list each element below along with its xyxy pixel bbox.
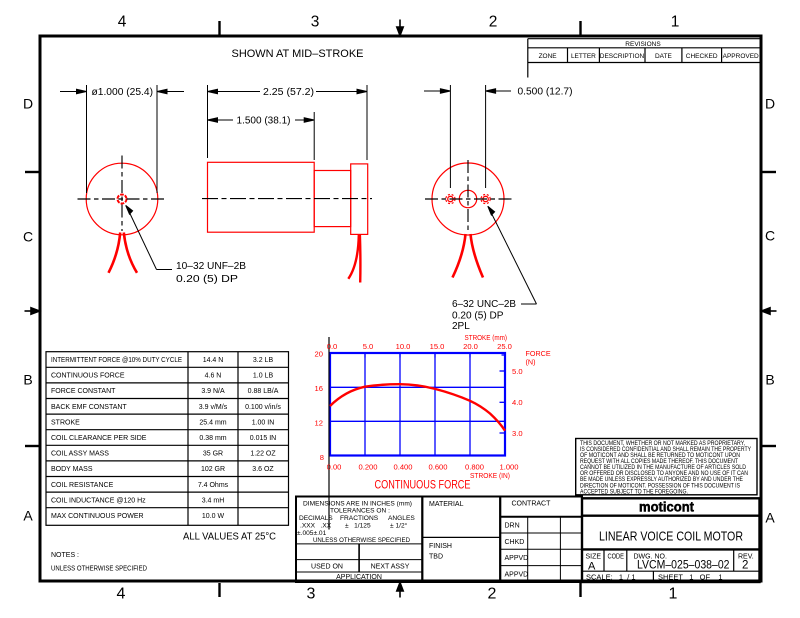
svg-text:± 1/2°: ± 1/2° xyxy=(390,522,408,530)
svg-text:25.0: 25.0 xyxy=(497,342,512,351)
svg-text:0.0: 0.0 xyxy=(327,342,338,351)
svg-text:CODE: CODE xyxy=(608,554,625,561)
svg-text:CHKD: CHKD xyxy=(505,539,525,546)
svg-text:20: 20 xyxy=(315,350,323,359)
svg-text:MATERIAL: MATERIAL xyxy=(429,501,464,508)
svg-text:0.88 LB/A: 0.88 LB/A xyxy=(248,388,279,395)
svg-text:10.0 W: 10.0 W xyxy=(202,513,225,520)
svg-text:0.400: 0.400 xyxy=(393,463,412,472)
svg-text:APPROVED: APPROVED xyxy=(723,53,759,60)
svg-text:3.6 OZ: 3.6 OZ xyxy=(252,466,274,473)
svg-text:BODY MASS: BODY MASS xyxy=(51,466,93,473)
svg-text:A: A xyxy=(588,561,596,573)
svg-text:2: 2 xyxy=(742,560,748,572)
svg-text:1.22 OZ: 1.22 OZ xyxy=(250,451,276,458)
svg-text:moticont: moticont xyxy=(639,500,694,515)
svg-text:2.25 (57.2): 2.25 (57.2) xyxy=(263,87,314,98)
svg-text:SHEET 1 OF 1: SHEET 1 OF 1 xyxy=(658,573,723,582)
svg-text:SIZE: SIZE xyxy=(586,554,602,561)
svg-text:CONTRACT: CONTRACT xyxy=(512,501,552,508)
svg-text:0.015 IN: 0.015 IN xyxy=(250,435,276,442)
svg-text:STROKE (mm): STROKE (mm) xyxy=(465,333,508,342)
svg-text:1: 1 xyxy=(669,586,678,603)
svg-text:D: D xyxy=(765,96,775,112)
svg-text:BACK EMF CONSTANT: BACK EMF CONSTANT xyxy=(51,404,127,411)
svg-text:0.20 (5) DP: 0.20 (5) DP xyxy=(176,274,238,285)
svg-text:C: C xyxy=(23,229,33,245)
svg-text:1.00 IN: 1.00 IN xyxy=(252,419,275,426)
svg-text:3.2 LB: 3.2 LB xyxy=(253,357,274,364)
svg-text:D: D xyxy=(23,96,33,112)
svg-text:B: B xyxy=(765,372,774,388)
svg-text:DRN: DRN xyxy=(505,523,520,530)
svg-text:LVCM–025–038–02: LVCM–025–038–02 xyxy=(637,560,730,572)
svg-text:.XXX .XX: .XXX .XX xyxy=(300,523,332,530)
svg-text:LETTER: LETTER xyxy=(571,53,596,60)
svg-text:ZONE: ZONE xyxy=(539,53,558,60)
svg-text:4.6 N: 4.6 N xyxy=(205,373,222,380)
svg-text:0.20 (5) DP: 0.20 (5) DP xyxy=(452,310,504,321)
svg-text:CHECKED: CHECKED xyxy=(686,53,718,60)
svg-text:MAX CONTINUOUS POWER: MAX CONTINUOUS POWER xyxy=(51,513,144,520)
svg-text:2PL: 2PL xyxy=(452,321,470,332)
svg-text:3.4 mH: 3.4 mH xyxy=(202,497,225,504)
svg-text:0.38 mm: 0.38 mm xyxy=(199,435,226,442)
svg-text:0.00: 0.00 xyxy=(327,463,342,472)
svg-text:±.005±.01: ±.005±.01 xyxy=(297,530,327,537)
svg-text:UNLESS OTHERWISE SPECIFIED: UNLESS OTHERWISE SPECIFIED xyxy=(51,566,147,573)
svg-text:ALL VALUES AT 25°C: ALL VALUES AT 25°C xyxy=(183,532,276,543)
svg-text:3: 3 xyxy=(311,14,320,31)
svg-text:4: 4 xyxy=(117,586,126,603)
svg-text:5.0: 5.0 xyxy=(512,367,523,376)
svg-text:LINEAR VOICE COIL MOTOR: LINEAR VOICE COIL MOTOR xyxy=(599,530,743,544)
svg-text:3.0: 3.0 xyxy=(512,429,523,438)
svg-text:3.9 N/A: 3.9 N/A xyxy=(201,388,225,395)
svg-text:6–32 UNC–2B: 6–32 UNC–2B xyxy=(452,299,516,310)
svg-text:DESCRIPTION: DESCRIPTION xyxy=(600,53,645,60)
svg-text:1: 1 xyxy=(671,14,680,31)
svg-text:ACCEPTED SUBJECT TO THE FOREGO: ACCEPTED SUBJECT TO THE FOREGOING. xyxy=(580,489,688,495)
svg-text:CONTINUOUS FORCE: CONTINUOUS FORCE xyxy=(51,373,125,380)
svg-text:0.200: 0.200 xyxy=(358,463,377,472)
svg-text:INTERMITTENT FORCE @10% DUTY C: INTERMITTENT FORCE @10% DUTY CYCLE xyxy=(51,357,182,364)
svg-text:APPVD: APPVD xyxy=(505,571,529,578)
svg-text:UNLESS OTHERWISE SPECIFIED: UNLESS OTHERWISE SPECIFIED xyxy=(313,537,410,544)
svg-text:SCALE: 1 / 1: SCALE: 1 / 1 xyxy=(586,573,636,582)
svg-text:5.0: 5.0 xyxy=(363,342,374,351)
svg-text:1.0 LB: 1.0 LB xyxy=(253,373,274,380)
svg-text:(N): (N) xyxy=(526,358,536,367)
svg-text:C: C xyxy=(765,228,775,244)
svg-text:12: 12 xyxy=(315,419,323,428)
svg-text:USED ON: USED ON xyxy=(311,564,343,571)
svg-text:APPVD: APPVD xyxy=(505,555,529,562)
svg-text:DECIMALS: DECIMALS xyxy=(299,515,333,522)
svg-text:SHOWN AT MID–STROKE: SHOWN AT MID–STROKE xyxy=(232,48,364,60)
svg-text:REVISIONS: REVISIONS xyxy=(625,41,661,48)
svg-text:TOLERANCES ON :: TOLERANCES ON : xyxy=(330,508,390,515)
svg-text:14.4 N: 14.4 N xyxy=(203,357,224,364)
svg-text:ANGLES: ANGLES xyxy=(388,515,415,522)
svg-text:4.0: 4.0 xyxy=(512,398,523,407)
svg-text:FRACTIONS: FRACTIONS xyxy=(340,515,379,522)
svg-text:10–32 UNF–2B: 10–32 UNF–2B xyxy=(176,261,246,272)
svg-text:STROKE: STROKE xyxy=(51,419,80,426)
svg-text:A: A xyxy=(765,510,775,526)
svg-text:NEXT ASSY: NEXT ASSY xyxy=(371,564,410,571)
svg-text:COIL ASSY MASS: COIL ASSY MASS xyxy=(51,451,109,458)
svg-text:A: A xyxy=(23,508,33,524)
svg-text:0.100 v/in/s: 0.100 v/in/s xyxy=(245,404,281,411)
svg-text:FINISH: FINISH xyxy=(429,543,452,550)
svg-text:1.500 (38.1): 1.500 (38.1) xyxy=(237,116,291,127)
svg-text:20.0: 20.0 xyxy=(463,342,478,351)
svg-text:102 GR: 102 GR xyxy=(201,466,225,473)
svg-text:4: 4 xyxy=(118,14,127,31)
svg-text:B: B xyxy=(23,372,32,388)
svg-text:0.600: 0.600 xyxy=(428,463,447,472)
svg-text:10.0: 10.0 xyxy=(396,342,411,351)
svg-text:7.4 Ohms: 7.4 Ohms xyxy=(198,482,229,489)
svg-text:DIMENSIONS ARE IN INCHES (mm): DIMENSIONS ARE IN INCHES (mm) xyxy=(303,501,412,508)
svg-text:ø1.000 (25.4): ø1.000 (25.4) xyxy=(92,87,154,98)
svg-text:APPLICATION: APPLICATION xyxy=(336,574,382,581)
svg-text:CONTINUOUS FORCE: CONTINUOUS FORCE xyxy=(375,480,471,492)
svg-text:3.9 v/M/s: 3.9 v/M/s xyxy=(199,404,228,411)
svg-text:FORCE CONSTANT: FORCE CONSTANT xyxy=(51,388,116,395)
svg-text:TBD: TBD xyxy=(429,554,443,561)
svg-text:0.500 (12.7): 0.500 (12.7) xyxy=(518,87,573,98)
svg-text:25.4 mm: 25.4 mm xyxy=(199,419,226,426)
svg-text:NOTES :: NOTES : xyxy=(51,552,79,559)
svg-text:COIL RESISTANCE: COIL RESISTANCE xyxy=(51,482,114,489)
svg-text:DATE: DATE xyxy=(655,53,673,60)
svg-text:COIL CLEARANCE PER SIDE: COIL CLEARANCE PER SIDE xyxy=(51,435,147,442)
svg-text:8: 8 xyxy=(320,453,324,462)
svg-text:COIL INDUCTANCE @120 Hz: COIL INDUCTANCE @120 Hz xyxy=(51,497,146,504)
svg-text:2: 2 xyxy=(488,586,497,603)
svg-text:STROKE (IN): STROKE (IN) xyxy=(470,471,510,480)
svg-text:15.0: 15.0 xyxy=(430,342,445,351)
svg-text:3: 3 xyxy=(307,586,316,603)
svg-text:16: 16 xyxy=(315,384,323,393)
svg-text:± 1/125: ± 1/125 xyxy=(345,523,371,530)
svg-text:2: 2 xyxy=(489,14,498,31)
svg-text:35 GR: 35 GR xyxy=(203,451,223,458)
